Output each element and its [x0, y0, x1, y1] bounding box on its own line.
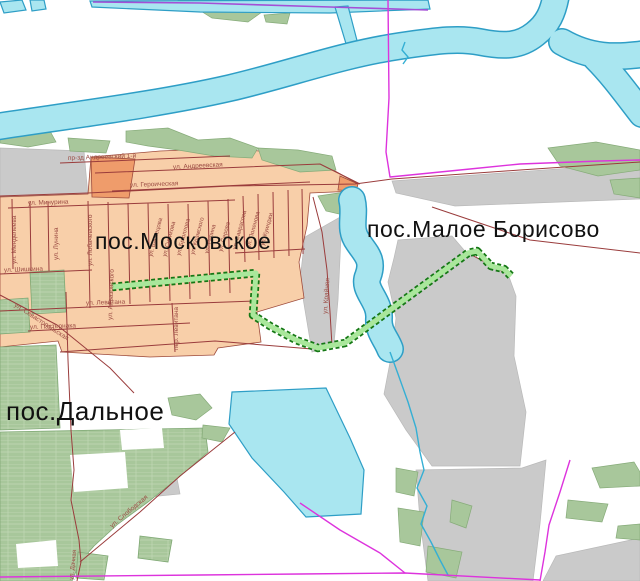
southeast-green-1	[592, 462, 640, 488]
street-label-levitana: ул. Левитана	[86, 299, 126, 307]
garden-plots-south-2	[138, 536, 172, 562]
street-label-mendeleeva: ул. Менделеева	[11, 215, 18, 264]
plots-gap-1	[70, 452, 128, 492]
stream-green-2	[398, 508, 424, 546]
southeast-green-3	[616, 524, 640, 540]
river-island-green-2	[264, 13, 290, 24]
gray-area-southeast-corner	[543, 538, 640, 581]
pond-top-left-2	[30, 0, 46, 11]
plots-gap-3	[120, 428, 164, 450]
street-label-levitana-lane: пер. Левитана	[173, 307, 180, 350]
garden-plots-mid-1	[30, 270, 66, 314]
stream-green-3	[426, 546, 462, 578]
pond-top-left-1	[0, 0, 26, 13]
settlement-label-moskovskoye: пос.Московское	[95, 228, 271, 254]
map-viewport: пр-зд Андреевский 1-й ул. Андреевская ул…	[0, 0, 640, 581]
street-label-lobachevskogo: ул. Лобачевского	[86, 214, 94, 266]
riverbank-green-2	[68, 138, 110, 153]
map-canvas[interactable]: пр-зд Андреевский 1-й ул. Андреевская ул…	[0, 0, 640, 581]
plots-gap-2	[16, 540, 58, 568]
lake-south	[229, 388, 364, 517]
dalnoye-green-blob-1	[168, 394, 212, 420]
stream-green-1	[396, 468, 418, 496]
street-label-michurina: ул. Мичурина	[28, 199, 69, 207]
street-label-lunina: ул. Лунина	[53, 227, 60, 260]
southeast-green-2	[566, 500, 608, 522]
settlement-label-dalnoye: пос.Дальное	[6, 396, 164, 426]
gray-area-center-west	[300, 216, 342, 352]
settlement-label-maloye-borisovo: пос.Малое Борисово	[367, 216, 600, 242]
street-label-shishkina: ул. Шишкина	[4, 266, 44, 274]
